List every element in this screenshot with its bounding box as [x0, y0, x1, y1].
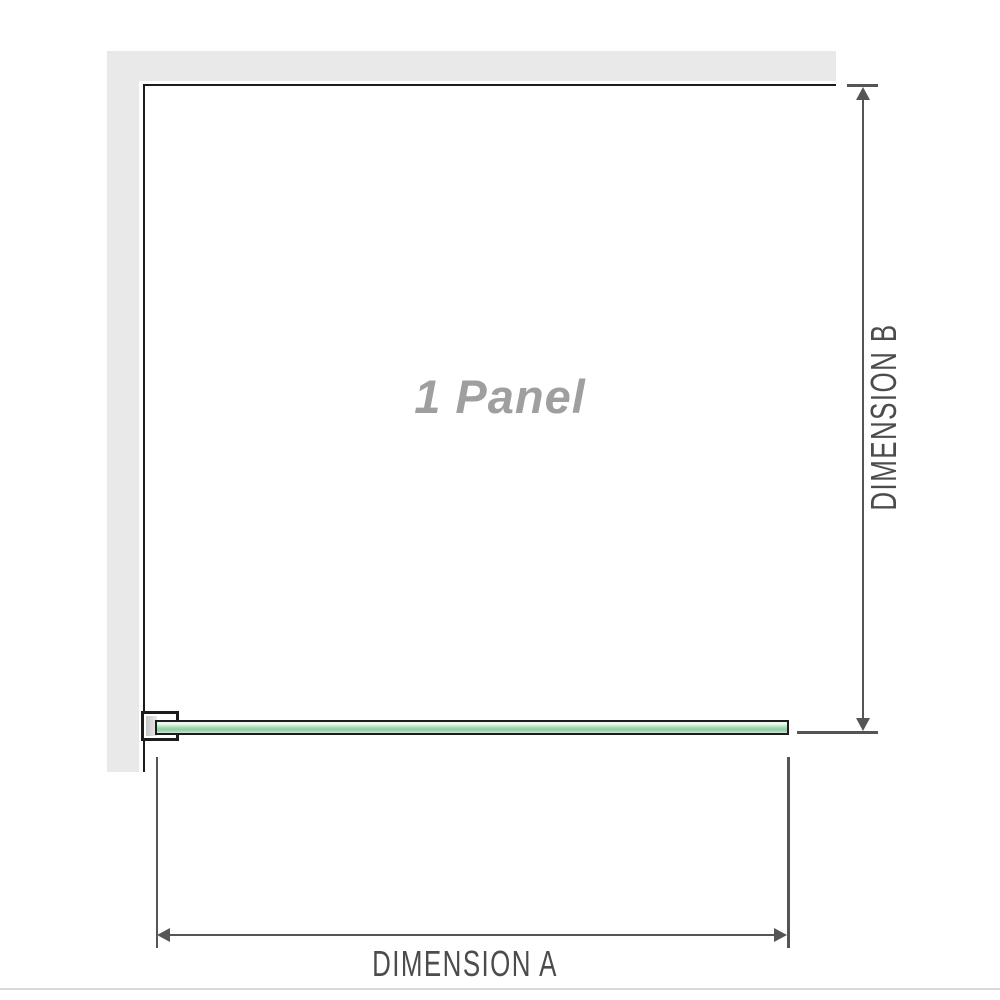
dimension-b-extension-bottom [797, 731, 878, 734]
shower-screen-diagram: 1 Panel DIMENSION B DIMENSION A [0, 0, 1000, 1000]
bottom-separator-line [0, 988, 1000, 990]
dimension-a-extension-right [787, 757, 790, 948]
dimension-a-extension-left [156, 757, 159, 948]
dimension-a-label: DIMENSION A [357, 944, 573, 984]
panel-opening-outline [143, 84, 836, 772]
dimension-a-arrow-left-icon [157, 928, 170, 942]
dimension-b-arrow-up-icon [856, 87, 870, 100]
dimension-b-arrow-down-icon [856, 718, 870, 731]
wall-side-bar [107, 51, 139, 772]
dimension-a-line [170, 934, 774, 937]
dimension-b-label: DIMENSION B [864, 309, 904, 525]
dimension-a-arrow-right-icon [774, 928, 787, 942]
panel-count-label: 1 Panel [330, 368, 670, 426]
glass-panel-bar [155, 720, 789, 735]
wall-top-bar [107, 51, 836, 81]
